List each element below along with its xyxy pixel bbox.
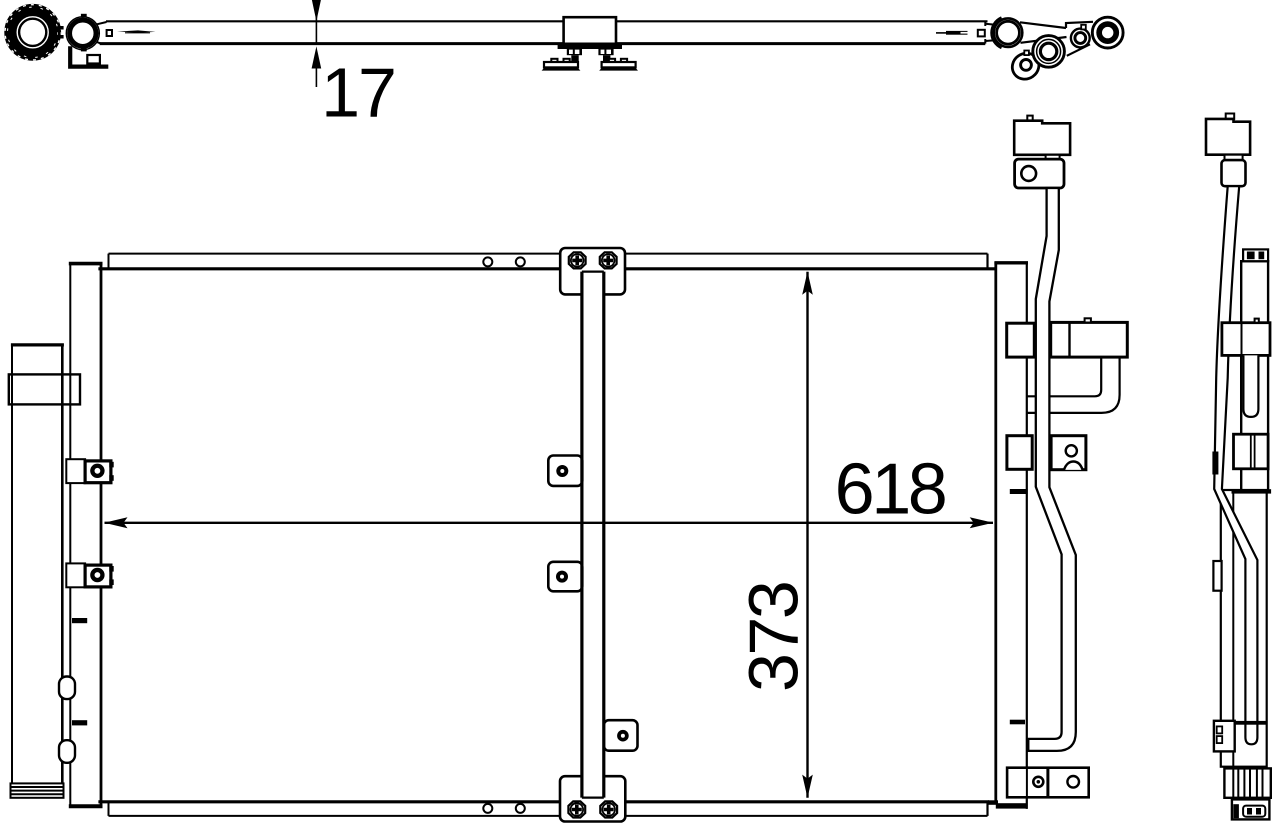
svg-text:17: 17 xyxy=(321,54,395,132)
svg-text:618: 618 xyxy=(835,450,945,530)
svg-text:373: 373 xyxy=(735,583,813,692)
